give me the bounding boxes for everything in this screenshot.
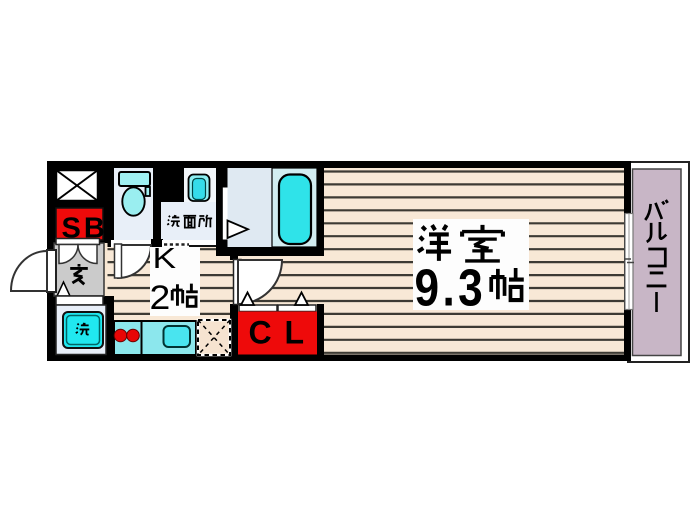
- svg-text:2: 2: [150, 279, 171, 317]
- svg-text:9.3: 9.3: [415, 259, 487, 317]
- svg-text:K: K: [153, 242, 177, 274]
- svg-text:CL: CL: [249, 315, 317, 351]
